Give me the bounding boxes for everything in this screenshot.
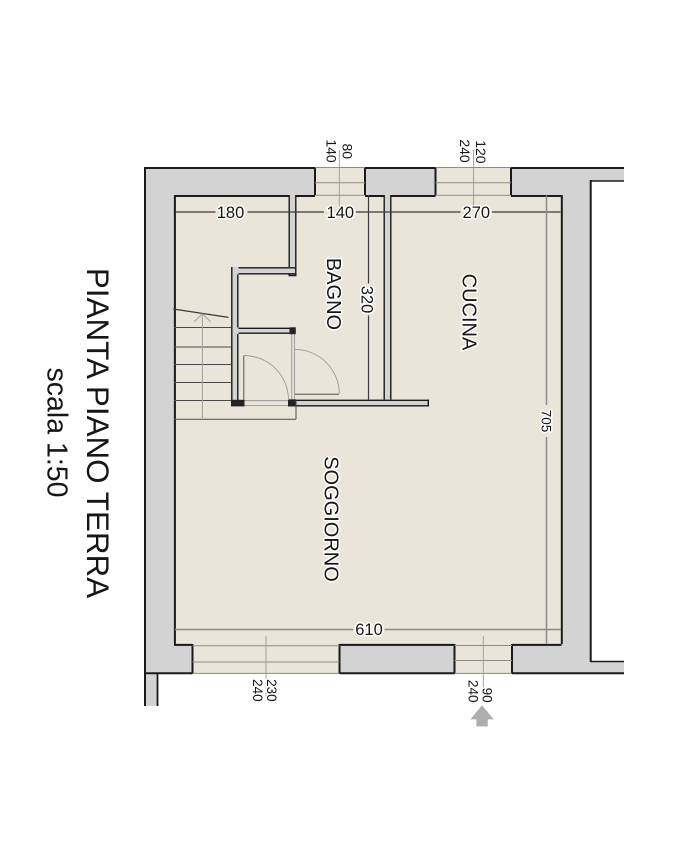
svg-text:PIANTA PIANO TERRA: PIANTA PIANO TERRA [80, 268, 115, 598]
svg-text:90: 90 [480, 688, 495, 703]
svg-text:230: 230 [264, 679, 279, 702]
svg-text:BAGNO: BAGNO [322, 258, 344, 330]
svg-text:240: 240 [250, 679, 265, 702]
svg-text:scala 1:50: scala 1:50 [41, 368, 73, 498]
svg-text:CUCINA: CUCINA [458, 274, 480, 351]
svg-text:610: 610 [355, 621, 383, 639]
svg-text:240: 240 [465, 680, 480, 703]
svg-text:140: 140 [324, 139, 340, 163]
svg-text:320: 320 [358, 286, 376, 314]
svg-text:270: 270 [463, 204, 491, 222]
svg-text:240: 240 [457, 139, 473, 163]
svg-text:180: 180 [217, 204, 245, 222]
svg-text:120: 120 [473, 140, 489, 164]
svg-text:140: 140 [327, 204, 355, 222]
svg-text:705: 705 [538, 410, 553, 433]
svg-text:80: 80 [339, 144, 355, 160]
svg-text:SOGGIORNO: SOGGIORNO [320, 456, 342, 582]
